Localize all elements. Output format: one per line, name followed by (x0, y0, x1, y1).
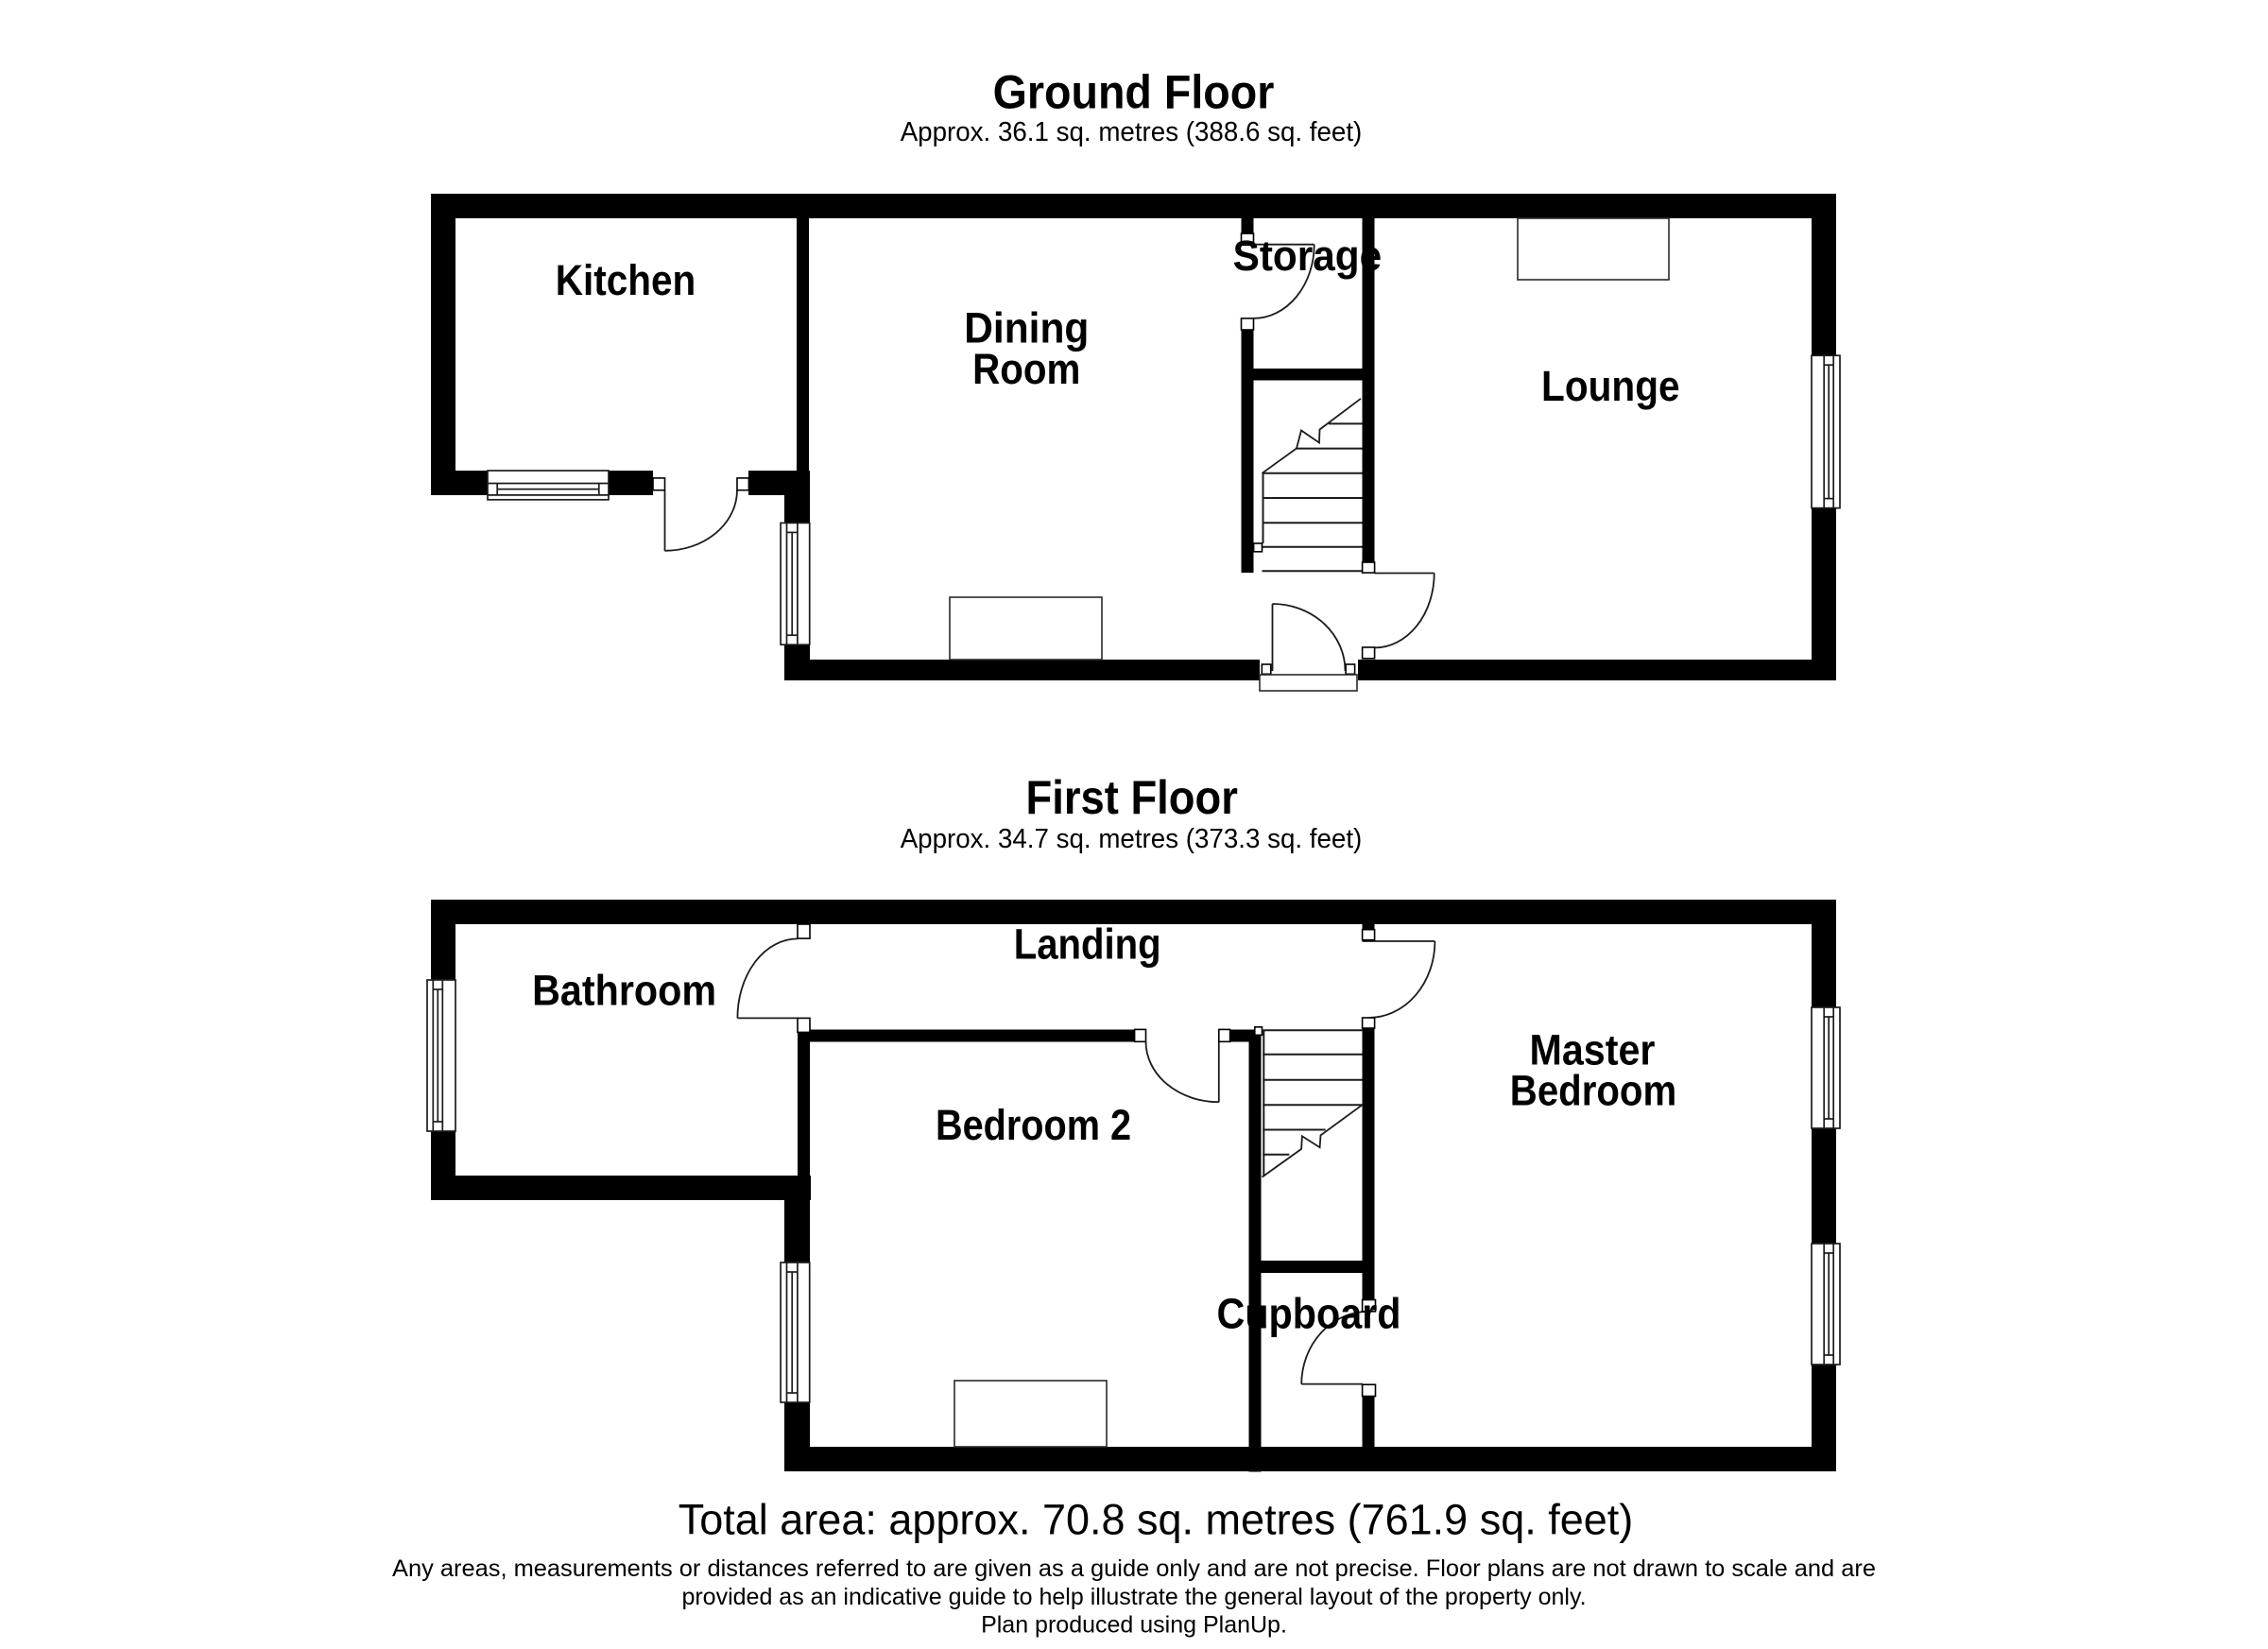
svg-text:Cupboard: Cupboard (1217, 1290, 1401, 1338)
svg-text:Storage: Storage (1233, 232, 1383, 280)
svg-text:Bedroom 2: Bedroom 2 (936, 1101, 1131, 1149)
svg-text:Total area: approx. 70.8 sq. m: Total area: approx. 70.8 sq. metres (761… (679, 1495, 1634, 1543)
svg-text:Plan produced using PlanUp.: Plan produced using PlanUp. (981, 1612, 1287, 1639)
svg-text:Landing: Landing (1014, 920, 1161, 969)
svg-text:First Floor: First Floor (1026, 771, 1238, 824)
svg-text:Bathroom: Bathroom (532, 966, 716, 1014)
svg-text:Kitchen: Kitchen (556, 256, 696, 304)
svg-text:Lounge: Lounge (1541, 362, 1680, 410)
svg-text:Ground Floor: Ground Floor (993, 66, 1275, 119)
svg-text:Bedroom: Bedroom (1510, 1067, 1676, 1115)
svg-text:Approx. 36.1 sq. metres (388.6: Approx. 36.1 sq. metres (388.6 sq. feet) (901, 117, 1363, 147)
svg-text:provided as an indicative guid: provided as an indicative guide to help … (681, 1584, 1586, 1610)
svg-text:Approx. 34.7 sq. metres (373.3: Approx. 34.7 sq. metres (373.3 sq. feet) (901, 824, 1363, 854)
svg-text:Any areas, measurements or dis: Any areas, measurements or distances ref… (392, 1555, 1876, 1582)
svg-text:Room: Room (972, 345, 1080, 393)
